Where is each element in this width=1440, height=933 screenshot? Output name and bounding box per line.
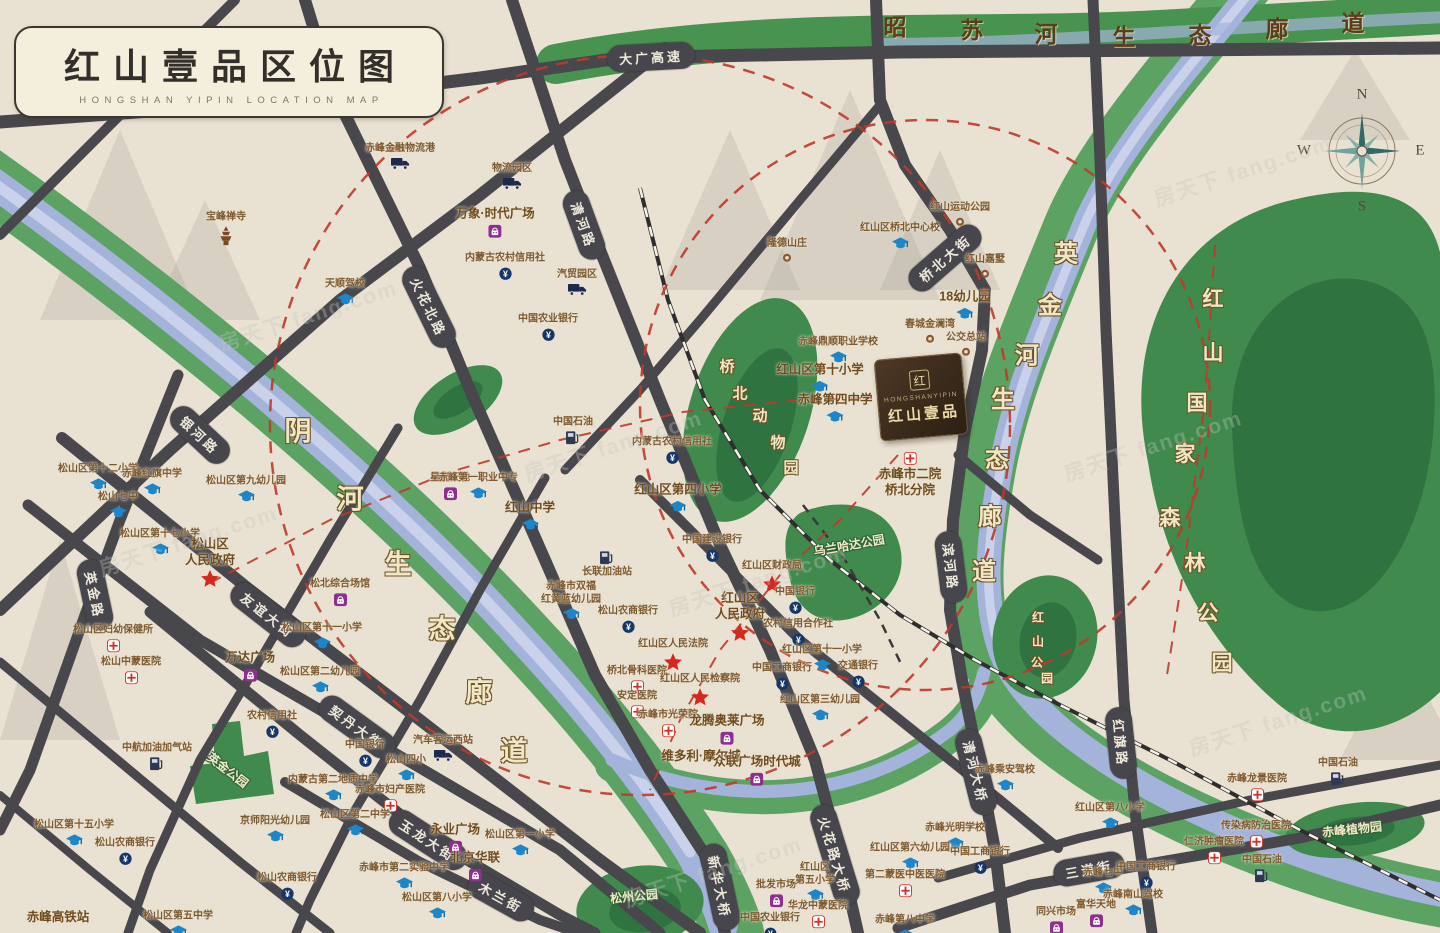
project-name-cn: 红山壹品 (884, 400, 961, 427)
map-title: 红山壹品区位图 (51, 38, 407, 90)
hongshan-forest-park-label-char: 园 (1212, 647, 1233, 677)
compass-w: W (1297, 143, 1311, 160)
compass-s: S (1358, 199, 1366, 216)
compass-rose: N E S W (1312, 101, 1412, 201)
zhaosu-river-corridor-label-char: 昭 (884, 8, 907, 42)
qiaobei-zoo-label-char: 物 (770, 432, 785, 453)
road-label-大广高速: 大广高速 (606, 41, 695, 73)
yin-river-corridor-label-char: 廊 (466, 671, 493, 710)
location-map: 红 HONGSHANYIPIN 红山壹品 N E S W 红山壹品区位图 HON… (0, 0, 1440, 933)
map-canvas (0, 0, 1440, 933)
zhaosu-river-corridor-label-char: 廊 (1266, 10, 1289, 44)
hongshan-forest-park-label-char: 公 (1198, 597, 1219, 627)
qiaobei-zoo-label-char: 动 (752, 405, 767, 426)
qiaobei-zoo-label-char: 北 (732, 383, 747, 404)
yin-river-corridor-label-char: 态 (429, 608, 456, 647)
yin-river-corridor-label-char: 生 (385, 543, 412, 582)
yingjin-river-corridor-label-char: 河 (1015, 336, 1039, 371)
project-logo: 红 (909, 369, 931, 391)
zhaosu-river-corridor-label-char: 道 (1342, 4, 1365, 38)
yingjin-river-corridor-label-char: 道 (972, 552, 996, 587)
hongshan-park-label-char: 园 (1041, 670, 1053, 687)
compass-e: E (1415, 143, 1424, 160)
compass-n: N (1357, 87, 1368, 104)
zhaosu-river-corridor-label-char: 苏 (961, 11, 984, 45)
hongshan-park-label-char: 山 (1032, 633, 1044, 650)
yingjin-river-corridor-label-char: 廊 (978, 497, 1002, 532)
zhaosu-river-corridor-label-char: 生 (1113, 18, 1136, 52)
zhaosu-river-corridor-label-char: 态 (1189, 16, 1212, 50)
yin-river-corridor-label-char: 阴 (285, 410, 312, 449)
hongshan-forest-park-label-char: 山 (1203, 337, 1224, 367)
yin-river-corridor-label-char: 河 (337, 478, 364, 517)
yingjin-river-corridor-label-char: 生 (991, 380, 1015, 415)
hongshan-park-label-char: 红 (1032, 609, 1044, 626)
yingjin-river-corridor-label-char: 金 (1038, 286, 1062, 321)
hongshan-forest-park-label-char: 林 (1185, 547, 1206, 577)
yingjin-river-corridor-label-char: 英 (1054, 234, 1078, 269)
yingjin-river-corridor-label-char: 态 (985, 440, 1009, 475)
yin-river-corridor-label-char: 道 (501, 730, 528, 769)
map-title-box: 红山壹品区位图 HONGSHAN YIPIN LOCATION MAP (14, 26, 444, 118)
hongshan-forest-park-label-char: 国 (1187, 387, 1208, 417)
map-title-en: HONGSHAN YIPIN LOCATION MAP (74, 95, 383, 106)
hongshan-forest-park-label-char: 家 (1175, 438, 1196, 468)
project-marker-hongshanyipin: 红 HONGSHANYIPIN 红山壹品 (874, 352, 969, 441)
hongshan-forest-park-label-char: 森 (1160, 502, 1181, 532)
compass-rose-icon (1312, 101, 1412, 201)
qiaobei-zoo-label-char: 园 (783, 457, 798, 478)
qiaobei-zoo-label-char: 桥 (719, 356, 734, 377)
hongshan-park-label-char: 公 (1031, 654, 1043, 671)
hongshan-forest-park-label-char: 红 (1203, 283, 1224, 313)
zhaosu-river-corridor-label-char: 河 (1035, 15, 1058, 49)
